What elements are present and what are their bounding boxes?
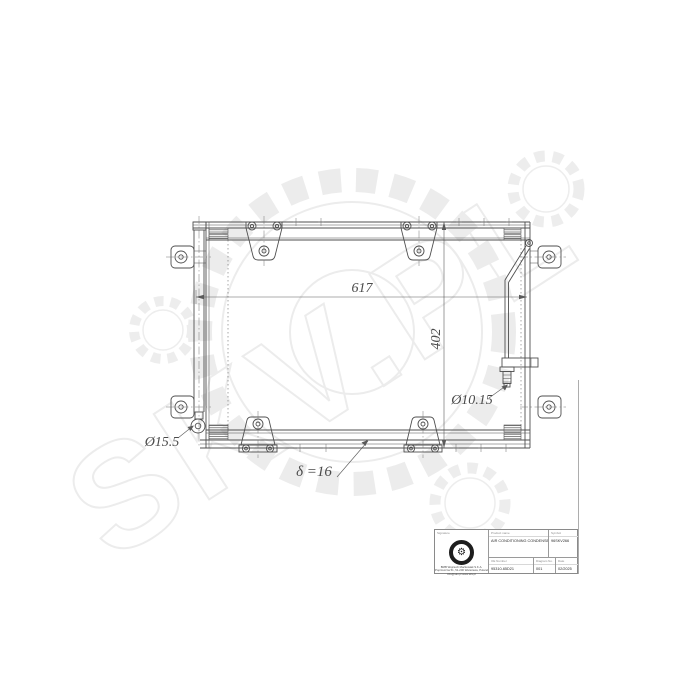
bottom-bracket-2 (404, 411, 442, 458)
drawing-sheet: SKV.PL (0, 0, 700, 700)
title-block-diagram-cell: Diagram No. 001 (533, 557, 555, 573)
oe-number-value: 95310-65D21 (489, 565, 533, 574)
right-header-tank (521, 222, 530, 448)
product-name-label: Product name (489, 530, 548, 537)
dim-thickness: δ =16 (296, 440, 368, 480)
top-bracket-1 (246, 216, 282, 266)
diagram-no-value: 001 (534, 565, 555, 574)
dim-width-label: 617 (352, 281, 374, 296)
dim-inlet: Ø15.5 (144, 426, 194, 451)
clip-top-right (520, 246, 566, 268)
product-name-value: AIR CONDITIONING CONDENSER (489, 537, 548, 546)
clip-bottom-right (520, 396, 566, 418)
symbol-value: 96SKV266 (549, 537, 578, 546)
title-block-product-cell: Product name AIR CONDITIONING CONDENSER (488, 530, 548, 557)
title-block-symbol-cell: Symbol 96SKV266 (548, 530, 578, 557)
outlet-pipe (500, 240, 538, 388)
company-logo: ⚙ (449, 540, 474, 565)
title-block-date-cell: Date 02/2025 (555, 557, 578, 573)
dim-height-label: 402 (429, 329, 444, 350)
oe-number-label: OE Number (489, 558, 533, 565)
left-header-tank (206, 222, 228, 448)
dim-width: 617 (196, 281, 527, 304)
condenser-drawing: 617 402 Ø10.15 Ø15.5 δ =16 (0, 0, 700, 700)
diagram-no-label: Diagram No. (534, 558, 555, 565)
title-block-oe-cell: OE Number 95310-65D21 (488, 557, 533, 573)
receiver-drier (191, 216, 206, 446)
symbol-label: Symbol (549, 530, 578, 537)
dim-outlet: Ø10.15 (450, 385, 508, 409)
title-block-signature-cell: Signature ⚙ BMB Wojciech Maćkowiak S.K.A… (435, 530, 488, 573)
title-block: Signature ⚙ BMB Wojciech Maćkowiak S.K.A… (434, 529, 578, 574)
dim-height: 402 (429, 222, 446, 448)
sheet-frame-line (578, 380, 579, 574)
bottom-bracket-1 (239, 411, 277, 458)
signature-label: Signature (435, 530, 488, 536)
dim-outlet-label: Ø10.15 (450, 393, 493, 408)
company-address-line3: info@skv.pl www.skv.pl (435, 573, 488, 576)
date-label: Date (556, 558, 578, 565)
top-bracket-2 (401, 216, 437, 266)
gear-icon: ⚙ (457, 548, 466, 558)
dim-inlet-label: Ø15.5 (144, 435, 180, 450)
dim-thickness-label: δ =16 (296, 464, 332, 480)
top-rail (193, 222, 530, 240)
date-value: 02/2025 (556, 565, 578, 574)
